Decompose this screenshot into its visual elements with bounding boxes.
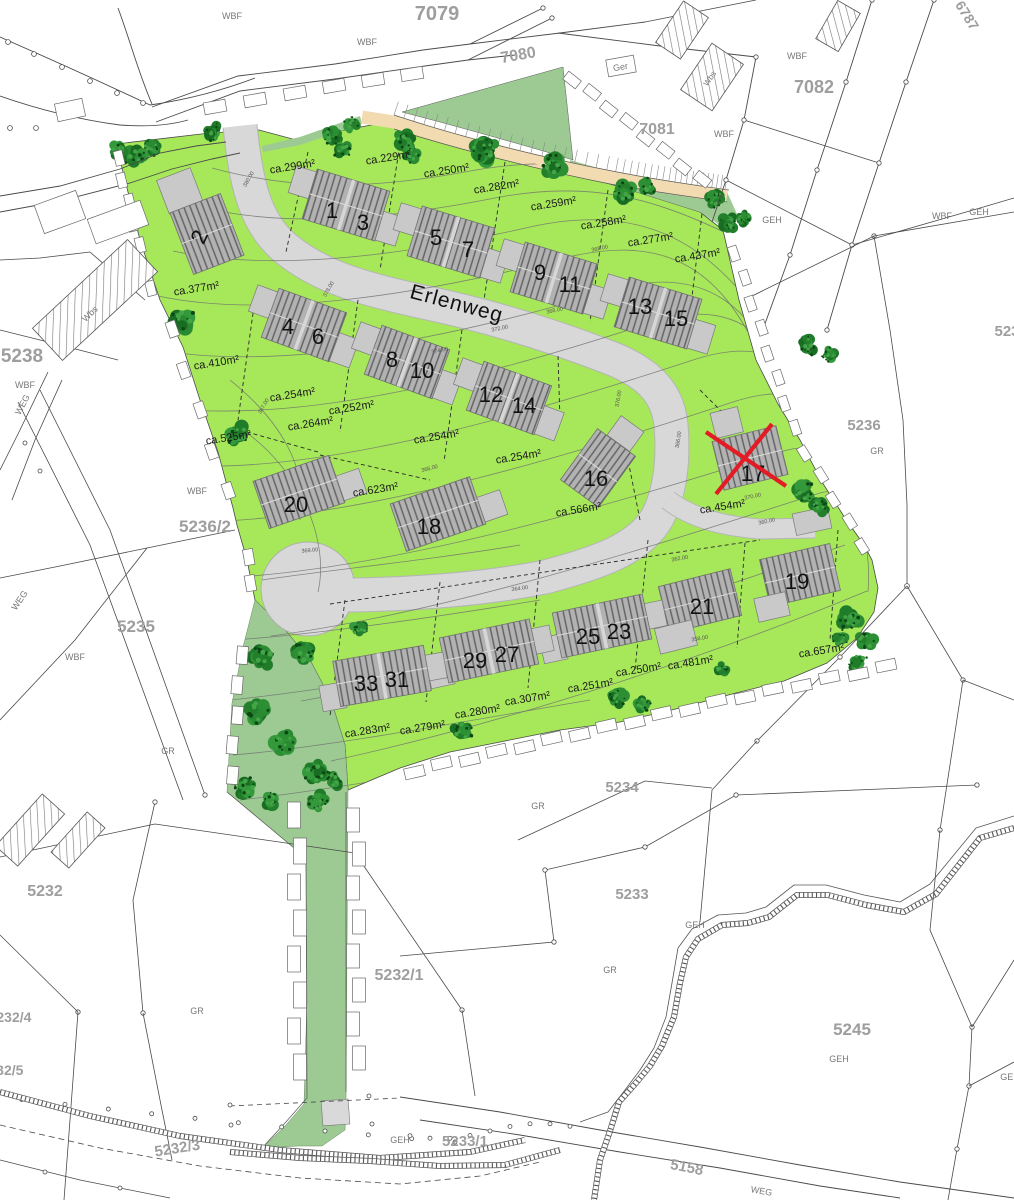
svg-text:10: 10 [410, 358, 434, 383]
svg-text:GEH: GEH [762, 215, 782, 225]
svg-text:1: 1 [326, 198, 338, 223]
svg-text:29: 29 [463, 648, 487, 673]
svg-text:5232/4: 5232/4 [0, 1009, 32, 1025]
svg-text:7082: 7082 [794, 77, 834, 97]
svg-text:9: 9 [534, 260, 546, 285]
svg-text:5235: 5235 [117, 617, 155, 636]
svg-text:5245: 5245 [833, 1020, 871, 1039]
svg-text:31: 31 [385, 667, 409, 692]
svg-text:GEH: GEH [390, 1135, 410, 1145]
svg-text:16: 16 [584, 466, 608, 491]
svg-text:WBF: WBF [15, 380, 35, 390]
svg-text:WBF: WBF [65, 652, 85, 662]
svg-text:GR: GR [870, 446, 884, 456]
svg-text:13: 13 [628, 294, 652, 319]
svg-text:GR: GR [603, 965, 617, 975]
svg-text:5233: 5233 [615, 886, 648, 903]
svg-text:11: 11 [559, 272, 582, 297]
svg-text:WBF: WBF [357, 37, 377, 47]
svg-text:GEH: GEH [969, 207, 989, 217]
svg-text:33: 33 [354, 671, 378, 696]
svg-text:GEH: GEH [685, 920, 705, 930]
svg-text:WBF: WBF [222, 11, 242, 21]
svg-text:5234: 5234 [605, 779, 639, 796]
svg-text:8: 8 [386, 347, 398, 372]
svg-text:23: 23 [607, 619, 631, 644]
svg-text:21: 21 [690, 594, 714, 619]
svg-text:20: 20 [284, 492, 308, 517]
svg-text:14: 14 [512, 393, 536, 418]
svg-text:5232: 5232 [27, 883, 63, 900]
svg-text:19: 19 [785, 569, 809, 594]
svg-text:5232/1: 5232/1 [375, 967, 424, 984]
svg-text:5: 5 [430, 225, 442, 250]
svg-text:GR: GR [531, 801, 545, 811]
svg-text:25: 25 [576, 624, 600, 649]
svg-text:GR: GR [190, 1006, 204, 1016]
svg-text:7079: 7079 [415, 3, 460, 25]
svg-text:18: 18 [417, 514, 441, 539]
svg-text:5233/1: 5233/1 [442, 1133, 488, 1150]
svg-text:12: 12 [479, 382, 503, 407]
svg-text:WBF: WBF [187, 486, 207, 496]
svg-text:27: 27 [495, 642, 519, 667]
svg-text:5236/2: 5236/2 [179, 517, 231, 536]
svg-text:7: 7 [462, 237, 474, 262]
svg-text:GEH: GEH [1000, 1072, 1014, 1082]
svg-text:5236: 5236 [847, 417, 880, 434]
svg-text:GEH: GEH [829, 1054, 849, 1064]
svg-text:GR: GR [161, 746, 175, 756]
svg-text:523: 523 [994, 323, 1014, 340]
svg-text:WBF: WBF [787, 51, 807, 61]
svg-text:6: 6 [312, 324, 324, 349]
svg-text:WBF: WBF [714, 129, 734, 139]
svg-text:WBF: WBF [932, 211, 952, 221]
svg-text:7081: 7081 [639, 121, 675, 138]
svg-text:5238: 5238 [1, 346, 43, 367]
svg-text:15: 15 [664, 306, 688, 331]
svg-text:4: 4 [282, 314, 294, 339]
svg-text:3: 3 [357, 210, 369, 235]
svg-text:5232/5: 5232/5 [0, 1062, 24, 1078]
